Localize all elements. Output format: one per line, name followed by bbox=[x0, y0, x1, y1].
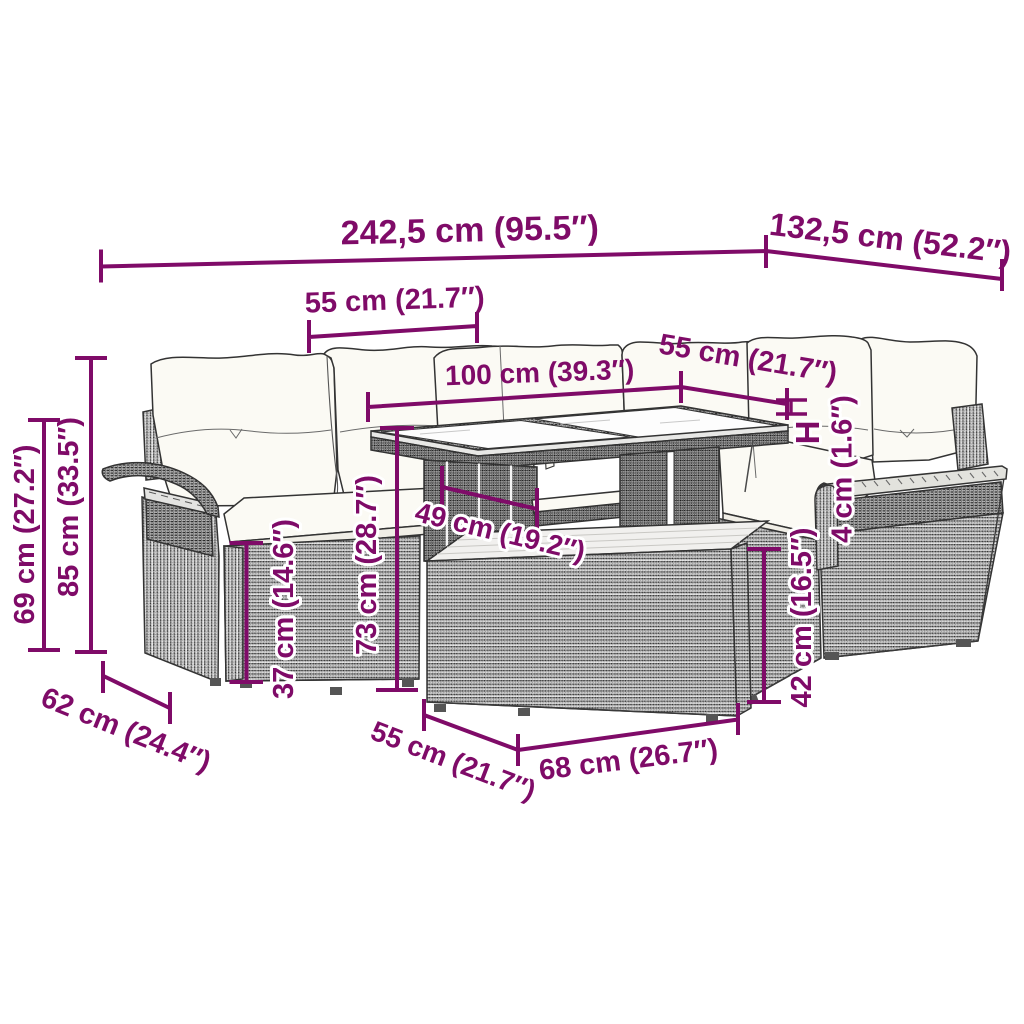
svg-text:4 cm (1.6″): 4 cm (1.6″) bbox=[827, 395, 859, 543]
svg-text:55 cm (21.7″): 55 cm (21.7″) bbox=[304, 281, 485, 319]
svg-text:242,5 cm (95.5″): 242,5 cm (95.5″) bbox=[340, 209, 599, 253]
svg-text:100 cm (39.3″): 100 cm (39.3″) bbox=[445, 354, 635, 392]
svg-text:69 cm (27.2″): 69 cm (27.2″) bbox=[9, 445, 41, 625]
svg-text:37 cm (14.6″): 37 cm (14.6″) bbox=[268, 519, 300, 699]
svg-text:42 cm (16.5″): 42 cm (16.5″) bbox=[786, 528, 818, 708]
svg-text:H: H bbox=[789, 421, 826, 445]
svg-text:85 cm (33.5″): 85 cm (33.5″) bbox=[53, 417, 85, 597]
svg-text:73 cm (28.7″): 73 cm (28.7″) bbox=[351, 475, 383, 655]
